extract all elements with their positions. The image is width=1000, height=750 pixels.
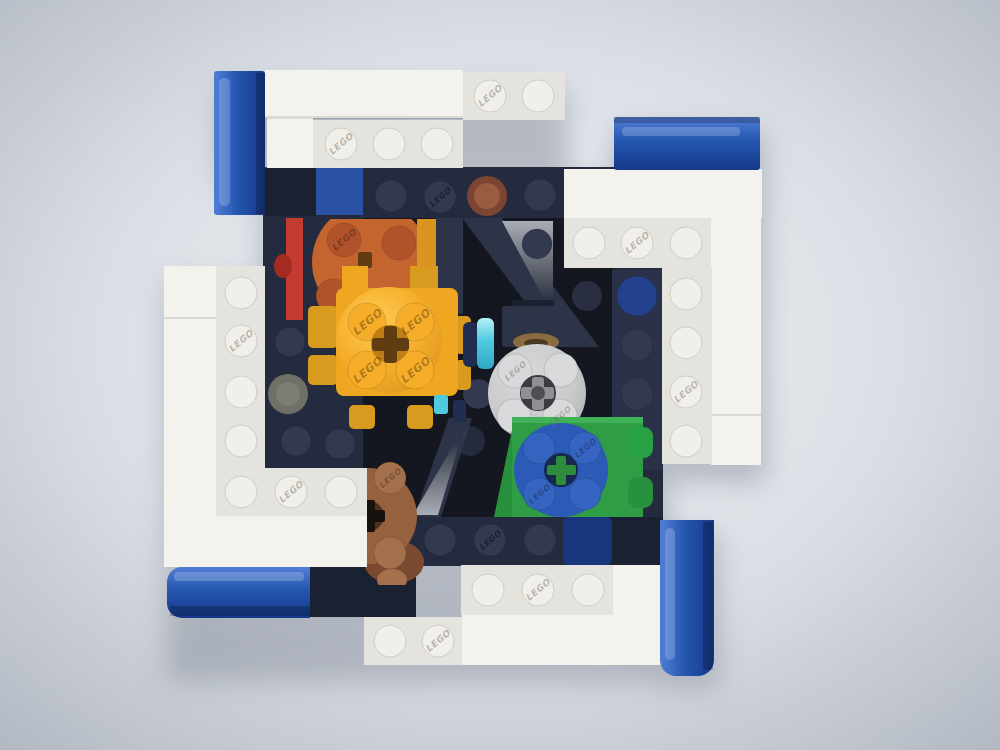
lego-model: LEGO LEGO LEGO LEGO LEGO LEGO LEGO LEGO … <box>164 70 762 676</box>
stud <box>374 537 406 569</box>
white-brick-smooth <box>711 218 761 465</box>
stud <box>225 476 257 508</box>
navy-dark-corner-top-left <box>265 168 317 216</box>
stud <box>424 181 456 213</box>
stud <box>225 277 257 309</box>
stud <box>670 278 702 310</box>
navy-pin <box>463 322 478 367</box>
stud <box>474 183 500 209</box>
white-brick-smooth <box>462 615 662 665</box>
stud <box>325 429 355 459</box>
stud <box>374 462 406 494</box>
stud <box>327 223 361 257</box>
blue-round-1x1-stud <box>617 276 657 316</box>
navy-pin-small <box>453 400 466 422</box>
azure-pin <box>477 318 494 369</box>
stud <box>621 329 653 361</box>
stud <box>670 425 702 457</box>
highlight <box>665 528 675 660</box>
yellow-bottom-tab <box>407 405 433 429</box>
blue-brick-bottom-left <box>167 567 310 618</box>
stud <box>421 128 453 160</box>
stud <box>276 382 300 406</box>
seam <box>711 414 761 416</box>
navy-dark-corner-bottom-right <box>610 517 663 566</box>
highlight <box>174 572 304 581</box>
white-brick-smooth <box>164 516 367 567</box>
stud <box>374 625 406 657</box>
green-side-stud <box>628 427 653 458</box>
stud <box>325 128 357 160</box>
azure-pin-small <box>434 395 448 414</box>
white-brick-smooth <box>613 565 662 615</box>
stud <box>524 524 556 556</box>
stud <box>572 281 602 311</box>
highlight <box>219 78 230 206</box>
lego-render-image: LEGO LEGO LEGO LEGO LEGO LEGO LEGO LEGO … <box>0 0 1000 750</box>
blue-1x1-brick <box>316 167 363 215</box>
dark-blue-wedge <box>563 517 612 565</box>
shade <box>614 117 760 123</box>
stud <box>424 524 456 556</box>
stud <box>524 179 556 211</box>
stud <box>670 227 702 259</box>
stud <box>573 227 605 259</box>
stud <box>569 478 601 510</box>
blue-brick-bottom-right <box>660 520 714 676</box>
stud <box>375 180 407 212</box>
brown-1x1-round-plate <box>467 176 507 216</box>
stud <box>281 426 311 456</box>
stud <box>275 476 307 508</box>
stud <box>572 574 604 606</box>
stud <box>621 378 653 410</box>
seam <box>164 317 217 319</box>
stud <box>474 80 506 112</box>
connector-block <box>502 300 565 351</box>
stud <box>522 574 554 606</box>
stud <box>474 524 506 556</box>
yellow-side-tab <box>308 355 338 385</box>
stud <box>325 476 357 508</box>
blue-brick-body <box>614 117 760 170</box>
blue-brick-top-right <box>614 117 760 170</box>
stud <box>522 229 552 259</box>
white-brick-smooth <box>564 169 762 218</box>
stud <box>472 574 504 606</box>
stud <box>225 425 257 457</box>
shade <box>170 606 310 616</box>
green-and-blue-round <box>494 417 643 517</box>
stud <box>670 327 702 359</box>
green-brick-top-edge <box>512 417 643 423</box>
blue-brick-top-left <box>214 71 265 215</box>
yellow-back-tab <box>417 219 436 271</box>
stud <box>455 426 485 456</box>
shade <box>703 522 713 670</box>
stud <box>522 80 554 112</box>
gray-1x1-round-plate <box>268 374 308 414</box>
stud <box>225 376 257 408</box>
stud <box>670 376 702 408</box>
stud <box>621 227 653 259</box>
yellow-side-tab <box>308 306 338 348</box>
seam <box>265 116 463 119</box>
white-brick-smooth <box>267 118 313 168</box>
green-side-stud <box>628 477 653 508</box>
shade <box>256 73 265 214</box>
stud <box>422 625 454 657</box>
red-side-stud <box>274 254 292 278</box>
yellow-bottom-tab <box>349 405 375 429</box>
stud <box>275 327 305 357</box>
axle-stub <box>358 252 372 268</box>
white-brick-smooth <box>265 70 463 118</box>
stud <box>382 226 416 260</box>
stud <box>225 325 257 357</box>
stud <box>373 128 405 160</box>
highlight <box>622 127 740 136</box>
